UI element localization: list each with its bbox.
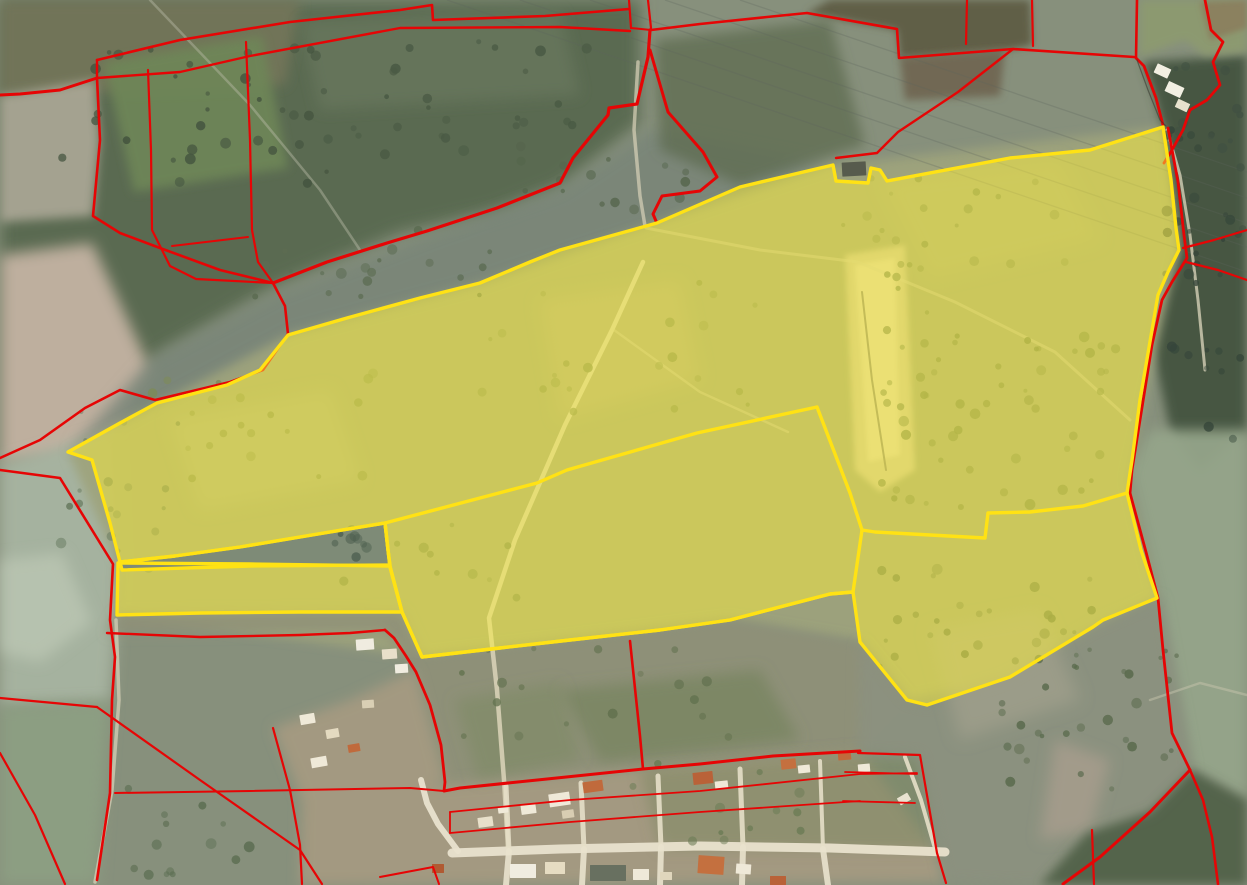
building	[736, 863, 752, 874]
tree	[1193, 251, 1199, 257]
tree	[391, 64, 401, 74]
tree	[1236, 354, 1244, 362]
tree	[514, 732, 523, 741]
tree	[690, 695, 699, 704]
tree	[289, 269, 293, 273]
building	[362, 700, 375, 709]
tree	[794, 788, 804, 798]
tree	[519, 118, 528, 127]
highlighted-parcel-strip[interactable]	[117, 563, 402, 615]
parcel-boundary-line	[1136, 0, 1137, 58]
building-roof	[842, 161, 867, 176]
tree	[163, 821, 169, 827]
building	[697, 855, 724, 875]
tree	[1167, 342, 1177, 352]
tree	[725, 733, 733, 741]
tree	[1184, 269, 1195, 280]
tree	[610, 198, 620, 208]
tree	[152, 840, 162, 850]
building	[545, 862, 565, 874]
tree	[196, 121, 205, 130]
building-roof	[781, 758, 797, 770]
tree	[999, 700, 1006, 707]
tree	[531, 646, 536, 651]
tree	[351, 552, 360, 561]
tree	[355, 133, 361, 139]
tree	[1208, 133, 1215, 140]
building	[510, 864, 536, 878]
tree	[671, 646, 678, 653]
tree	[1173, 66, 1178, 71]
tree	[535, 46, 546, 57]
building	[590, 865, 626, 881]
tree	[1189, 193, 1199, 203]
tree	[220, 138, 231, 149]
tree	[253, 136, 263, 146]
tree	[461, 733, 467, 739]
tree	[459, 670, 465, 676]
building-roof	[510, 864, 536, 878]
building-roof	[356, 638, 375, 650]
building	[660, 872, 672, 880]
tree	[426, 105, 431, 110]
tree	[1131, 698, 1142, 709]
tree	[1017, 721, 1026, 730]
tree	[1035, 730, 1042, 737]
building	[858, 763, 871, 772]
terrain-patch-pale-field-nw	[0, 80, 100, 222]
tree	[130, 865, 138, 873]
building-roof	[736, 863, 752, 874]
tree	[493, 698, 501, 706]
tree	[458, 145, 469, 156]
tree	[1223, 212, 1228, 217]
tree	[476, 39, 481, 44]
tree	[492, 44, 499, 51]
tree	[519, 684, 525, 690]
tree	[718, 830, 723, 835]
building-roof	[362, 700, 375, 709]
tree	[205, 107, 209, 111]
building	[382, 648, 398, 659]
tree	[198, 802, 206, 810]
tree	[682, 169, 689, 176]
tree	[1205, 348, 1210, 353]
street-road	[658, 776, 661, 847]
tree	[797, 827, 805, 835]
building	[842, 161, 867, 176]
tree	[289, 110, 299, 120]
tree	[586, 170, 596, 180]
tree	[175, 177, 185, 187]
tree	[171, 158, 176, 163]
tree	[346, 533, 357, 544]
tree	[517, 157, 526, 166]
building-roof	[697, 855, 724, 875]
tree	[582, 43, 592, 53]
tree	[326, 290, 332, 296]
tree	[340, 238, 348, 246]
tree	[252, 294, 258, 300]
tree	[206, 91, 210, 95]
tree	[608, 709, 618, 719]
building-roof	[590, 865, 626, 881]
tree	[324, 170, 328, 174]
tree	[161, 811, 168, 818]
tree	[561, 189, 565, 193]
building	[798, 764, 811, 773]
tree	[1217, 143, 1227, 153]
tree	[563, 118, 571, 126]
tree	[1204, 422, 1214, 432]
tree	[332, 540, 339, 547]
tree	[1003, 743, 1011, 751]
tree	[423, 94, 433, 104]
terrain-patch-pasture-southwest	[0, 702, 110, 885]
tree	[1187, 229, 1192, 234]
tree	[321, 88, 327, 94]
street-road	[581, 783, 584, 849]
building	[633, 869, 649, 880]
tree	[457, 274, 464, 281]
building-roof	[692, 771, 713, 785]
tree	[702, 676, 712, 686]
tree	[125, 785, 132, 792]
tree	[516, 142, 526, 152]
tree	[173, 74, 177, 78]
tree	[1204, 365, 1209, 370]
tree	[1078, 771, 1084, 777]
tree	[1236, 111, 1243, 118]
parcel-boundary-line	[966, 0, 967, 44]
tree	[206, 838, 217, 849]
tree	[220, 821, 226, 827]
tree	[244, 841, 255, 852]
tree	[497, 678, 507, 688]
tree	[680, 177, 690, 187]
tree	[66, 503, 73, 510]
tree	[1124, 669, 1133, 678]
map-canvas[interactable]	[0, 0, 1247, 885]
tree	[606, 157, 611, 162]
tree	[384, 94, 389, 99]
tree	[257, 97, 262, 102]
building-roof	[660, 872, 672, 880]
tree	[107, 50, 112, 55]
map-view[interactable]	[0, 0, 1247, 885]
tree	[1072, 664, 1077, 669]
tree	[336, 268, 347, 279]
tree	[164, 377, 172, 385]
tree	[699, 713, 706, 720]
building	[395, 664, 409, 674]
building	[781, 758, 797, 770]
building-roof	[562, 809, 575, 819]
tree	[1218, 272, 1223, 277]
tree	[1074, 653, 1079, 658]
building-roof	[395, 664, 409, 674]
tree	[361, 263, 371, 273]
tree	[240, 73, 251, 84]
tree	[187, 144, 197, 154]
tree	[311, 51, 321, 61]
tree	[303, 179, 312, 188]
tree	[564, 721, 569, 726]
tree	[1229, 435, 1237, 443]
tree	[1109, 786, 1114, 791]
tree	[361, 542, 371, 552]
tree	[387, 244, 397, 254]
tree	[1215, 347, 1222, 354]
tree	[393, 123, 402, 132]
tree	[1184, 351, 1192, 359]
tree	[1127, 742, 1137, 752]
tree	[1103, 715, 1113, 725]
tree	[1042, 683, 1049, 690]
building	[356, 638, 375, 650]
building-roof	[798, 764, 811, 773]
tree	[720, 836, 729, 845]
tree	[209, 234, 214, 239]
tree	[1160, 753, 1168, 761]
terrain-patch-field-strip-top	[300, 10, 580, 110]
tree	[441, 133, 450, 142]
tree	[674, 680, 684, 690]
tree	[148, 388, 158, 398]
tree	[594, 645, 602, 653]
tree	[998, 709, 1005, 716]
parcel-boundary-line	[1032, 0, 1033, 46]
tree	[1228, 138, 1233, 143]
tree	[757, 769, 763, 775]
building-roof	[858, 763, 871, 772]
tree	[164, 871, 170, 877]
tree	[513, 122, 520, 129]
tree	[1174, 653, 1179, 658]
building	[770, 876, 786, 885]
building	[477, 816, 493, 828]
tree	[280, 107, 286, 113]
tree	[186, 61, 193, 68]
building	[562, 809, 575, 819]
tree	[1194, 144, 1202, 152]
tree	[323, 134, 332, 143]
tree	[144, 870, 154, 880]
tree	[479, 263, 487, 271]
tree	[522, 188, 528, 194]
tree	[630, 783, 637, 790]
tree	[1123, 737, 1129, 743]
street-road	[582, 849, 584, 885]
building-roof	[382, 648, 398, 659]
tree	[268, 146, 277, 155]
tree	[363, 276, 373, 286]
building-roof	[545, 862, 565, 874]
tree	[1187, 131, 1195, 139]
tree	[1218, 368, 1224, 374]
tree	[358, 294, 363, 299]
tree	[77, 488, 81, 492]
tree	[232, 855, 241, 864]
tree	[487, 249, 492, 254]
tree	[747, 825, 753, 831]
tree	[793, 808, 801, 816]
tree	[1077, 723, 1085, 731]
tree	[304, 111, 314, 121]
building-roof	[477, 816, 493, 828]
tree	[515, 115, 521, 121]
tree	[1236, 163, 1244, 171]
tree	[662, 162, 668, 168]
tree	[295, 140, 304, 149]
building-roof	[633, 869, 649, 880]
street-road	[506, 786, 509, 851]
tree	[282, 248, 288, 254]
tree	[90, 64, 101, 75]
tree	[1193, 280, 1199, 286]
tree	[185, 154, 196, 165]
tree	[426, 259, 434, 267]
tree	[1014, 744, 1025, 755]
tree	[1221, 66, 1231, 76]
street-road	[506, 851, 509, 885]
tree	[351, 125, 357, 131]
building-roof	[770, 876, 786, 885]
tree	[1158, 656, 1162, 660]
tree	[320, 271, 324, 275]
building	[692, 771, 713, 785]
tree	[406, 44, 414, 52]
tree	[555, 100, 563, 108]
tree	[1024, 757, 1030, 763]
tree	[773, 807, 781, 815]
tree	[688, 836, 697, 845]
tree	[1169, 748, 1174, 753]
tree	[1005, 777, 1015, 787]
tree	[599, 201, 604, 206]
tree	[442, 116, 450, 124]
street-road	[740, 769, 743, 847]
tree	[1181, 62, 1190, 71]
tree	[638, 671, 644, 677]
tree	[380, 149, 390, 159]
terrain-patch-fields-green-upper	[104, 36, 288, 192]
tree	[377, 258, 381, 262]
tree	[1087, 648, 1092, 653]
tree	[123, 136, 131, 144]
tree	[56, 538, 67, 549]
tree	[58, 154, 66, 162]
tree	[629, 205, 639, 215]
tree	[1063, 730, 1070, 737]
tree	[523, 69, 529, 75]
